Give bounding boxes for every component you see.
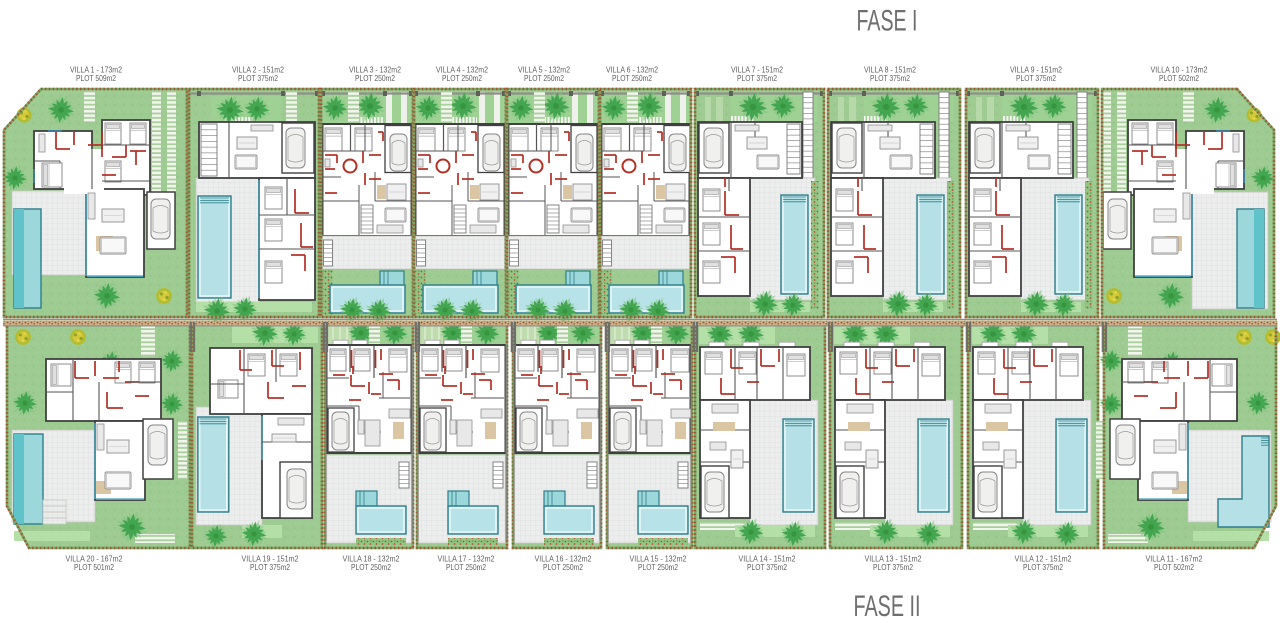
svg-text:PLOT 250m2: PLOT 250m2 bbox=[351, 563, 391, 572]
svg-text:PLOT 375m2: PLOT 375m2 bbox=[870, 74, 910, 83]
svg-text:PLOT 375m2: PLOT 375m2 bbox=[873, 563, 913, 572]
svg-text:FASE II: FASE II bbox=[854, 590, 921, 619]
svg-text:PLOT 502m2: PLOT 502m2 bbox=[1154, 563, 1194, 572]
svg-text:PLOT 375m2: PLOT 375m2 bbox=[747, 563, 787, 572]
svg-text:PLOT 375m2: PLOT 375m2 bbox=[1023, 563, 1063, 572]
svg-text:PLOT 375m2: PLOT 375m2 bbox=[1016, 74, 1056, 83]
svg-text:PLOT 250m2: PLOT 250m2 bbox=[543, 563, 583, 572]
svg-text:PLOT 250m2: PLOT 250m2 bbox=[446, 563, 486, 572]
svg-text:PLOT 250m2: PLOT 250m2 bbox=[612, 74, 652, 83]
svg-text:PLOT 501m2: PLOT 501m2 bbox=[74, 563, 114, 572]
svg-text:PLOT 375m2: PLOT 375m2 bbox=[238, 74, 278, 83]
svg-text:PLOT 250m2: PLOT 250m2 bbox=[442, 74, 482, 83]
svg-text:PLOT 502m2: PLOT 502m2 bbox=[1159, 74, 1199, 83]
svg-text:FASE I: FASE I bbox=[857, 5, 918, 38]
svg-text:PLOT 250m2: PLOT 250m2 bbox=[638, 563, 678, 572]
svg-text:PLOT 375m2: PLOT 375m2 bbox=[250, 563, 290, 572]
svg-text:PLOT 250m2: PLOT 250m2 bbox=[524, 74, 564, 83]
svg-text:PLOT 250m2: PLOT 250m2 bbox=[355, 74, 395, 83]
svg-text:PLOT 509m2: PLOT 509m2 bbox=[76, 74, 116, 83]
svg-text:PLOT 375m2: PLOT 375m2 bbox=[737, 74, 777, 83]
